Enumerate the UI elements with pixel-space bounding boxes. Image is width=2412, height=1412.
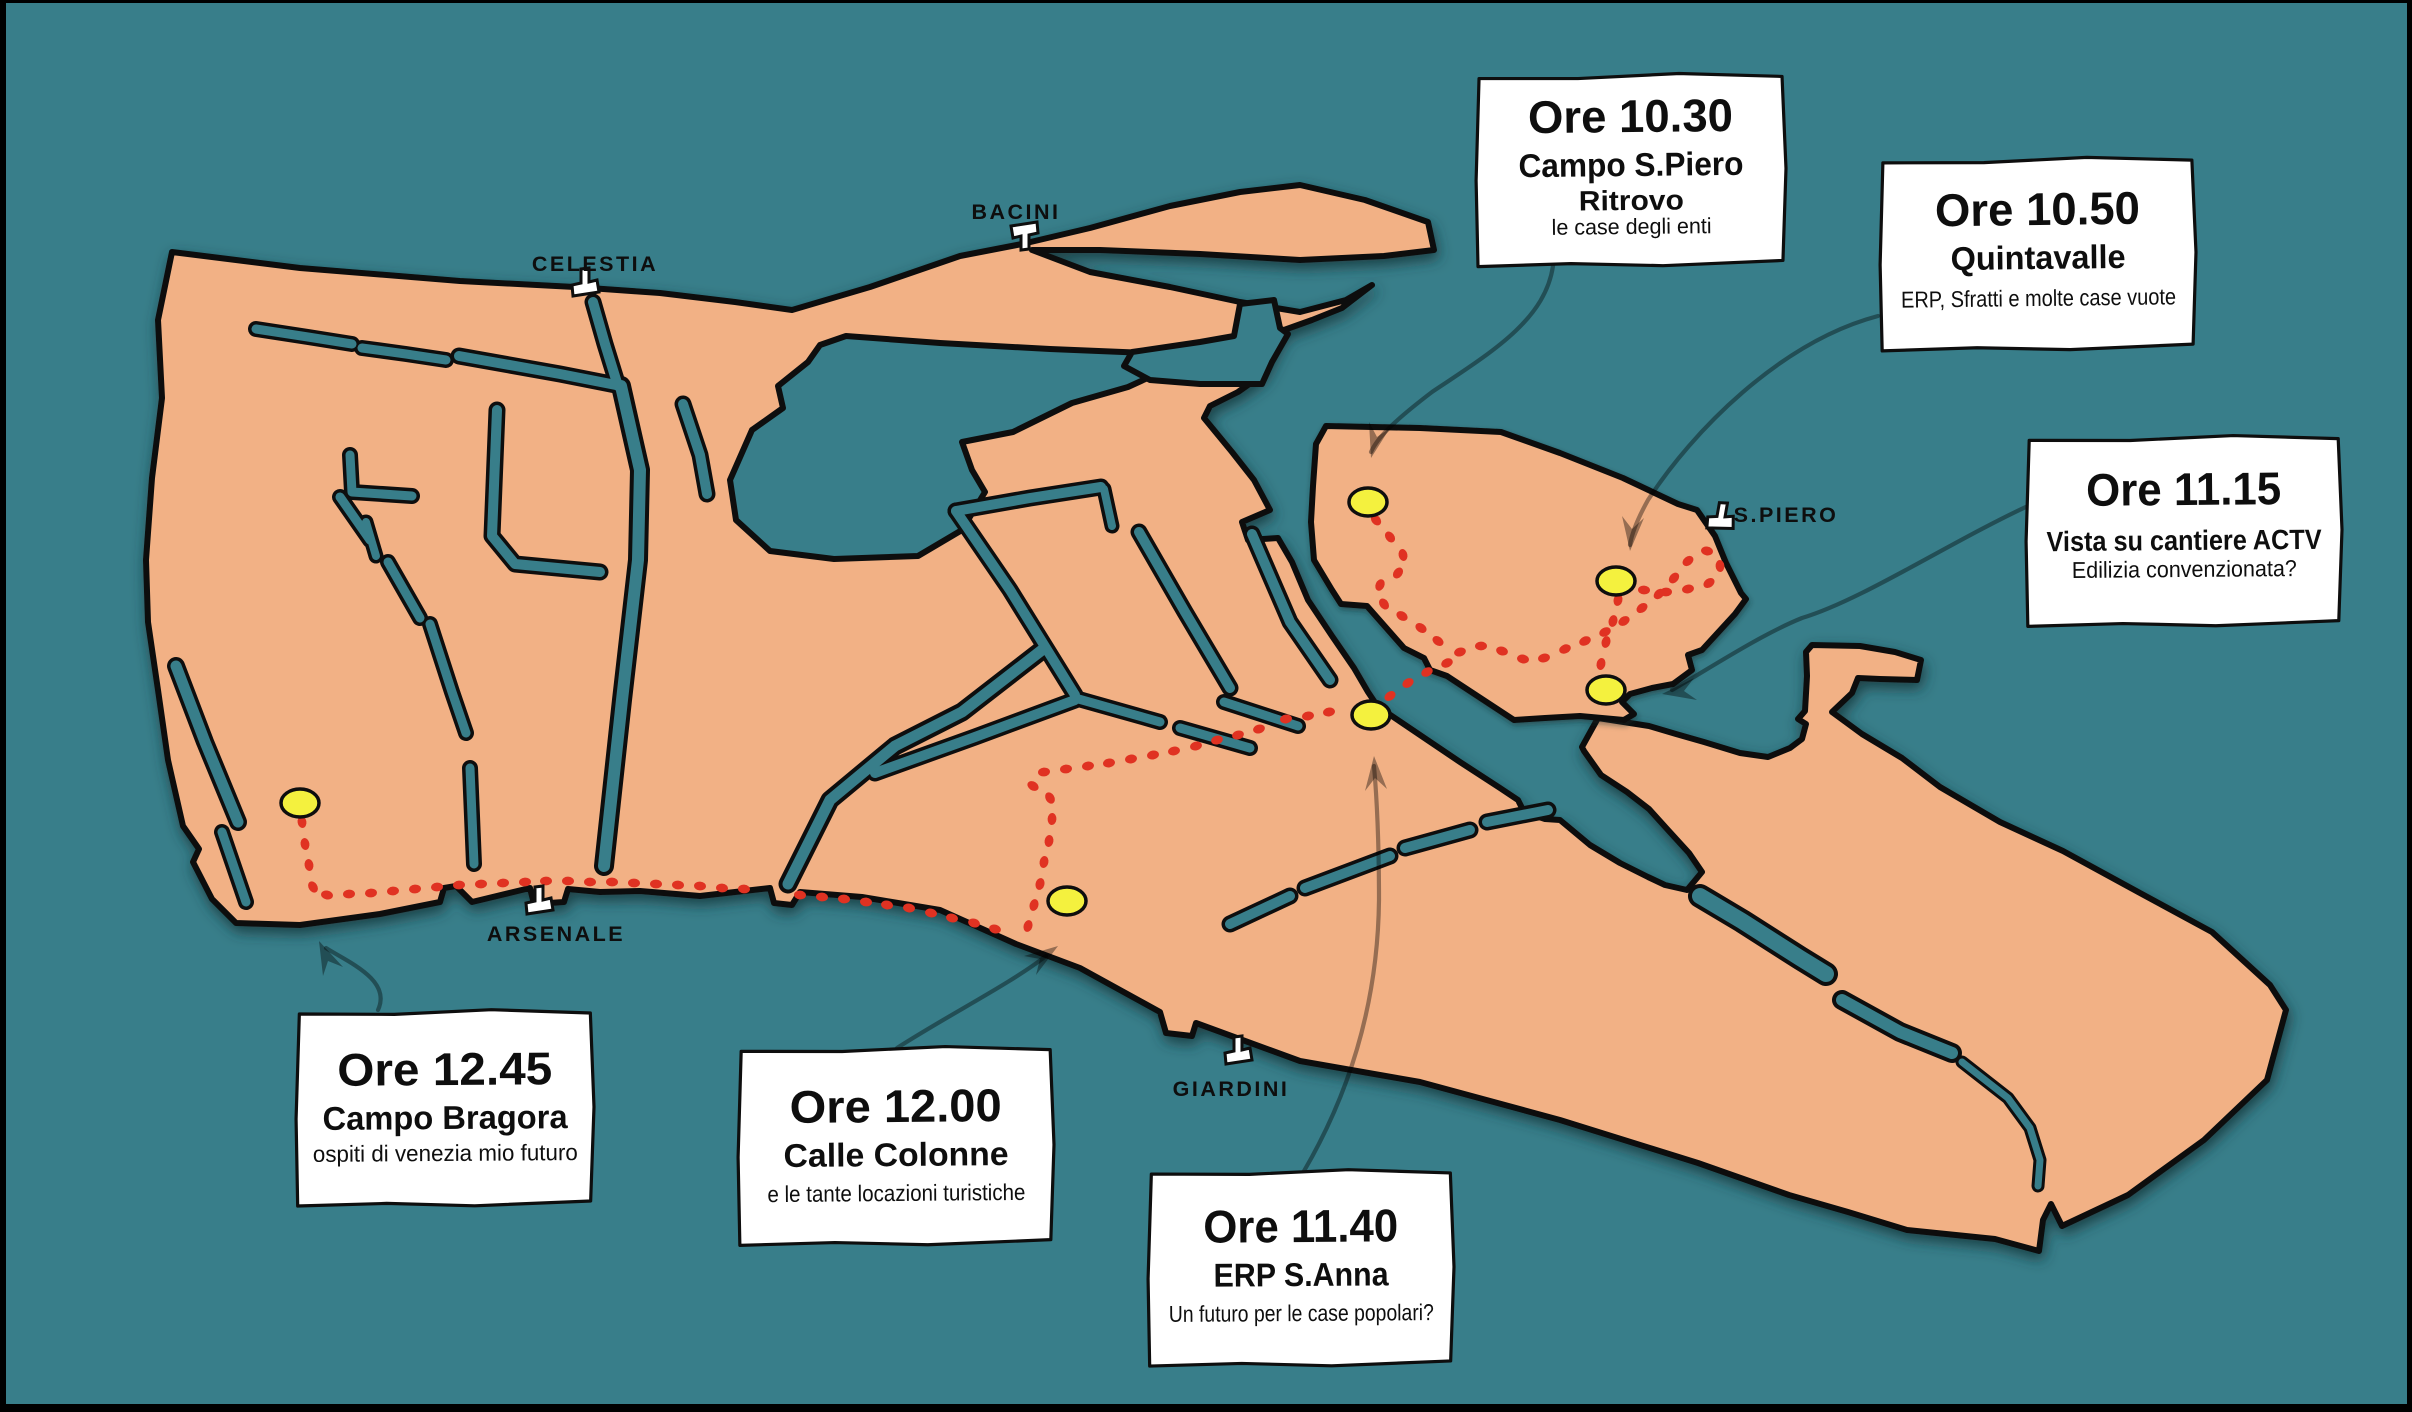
svg-text:BACINI: BACINI	[971, 200, 1060, 224]
svg-text:CELESTIA: CELESTIA	[532, 252, 658, 276]
svg-text:Ore 11.40: Ore 11.40	[1203, 1199, 1398, 1252]
svg-text:Quintavalle: Quintavalle	[1950, 238, 2125, 277]
svg-text:GIARDINI: GIARDINI	[1173, 1077, 1290, 1101]
svg-text:Edilizia convenzionata?: Edilizia convenzionata?	[2072, 555, 2297, 583]
svg-text:ARSENALE: ARSENALE	[487, 922, 625, 946]
svg-text:e le tante locazioni turistich: e le tante locazioni turistiche	[767, 1179, 1025, 1207]
svg-text:Calle Colonne: Calle Colonne	[783, 1135, 1008, 1174]
svg-text:Ore 10.30: Ore 10.30	[1528, 89, 1734, 143]
svg-text:Ore 12.45: Ore 12.45	[337, 1042, 552, 1095]
svg-text:Ore 11.15: Ore 11.15	[2086, 462, 2281, 516]
svg-text:Ritrovo: Ritrovo	[1579, 184, 1684, 216]
svg-text:Campo Bragora: Campo Bragora	[322, 1098, 568, 1137]
svg-text:Campo S.Piero: Campo S.Piero	[1518, 145, 1743, 184]
svg-text:Ore 12.00: Ore 12.00	[789, 1079, 1001, 1133]
svg-text:ERP, Sfratti e molte case vuot: ERP, Sfratti e molte case vuote	[1901, 283, 2176, 312]
svg-text:ERP S.Anna: ERP S.Anna	[1213, 1255, 1389, 1293]
svg-text:S.PIERO: S.PIERO	[1734, 503, 1839, 527]
svg-text:Un futuro per le case popolari: Un futuro per le case popolari?	[1169, 1299, 1434, 1327]
svg-text:le case degli enti: le case degli enti	[1551, 213, 1711, 240]
svg-text:Ore 10.50: Ore 10.50	[1935, 182, 2141, 237]
svg-text:Vista su cantiere ACTV: Vista su cantiere ACTV	[2046, 524, 2322, 557]
svg-text:ospiti di venezia mio futuro: ospiti di venezia mio futuro	[313, 1139, 578, 1167]
